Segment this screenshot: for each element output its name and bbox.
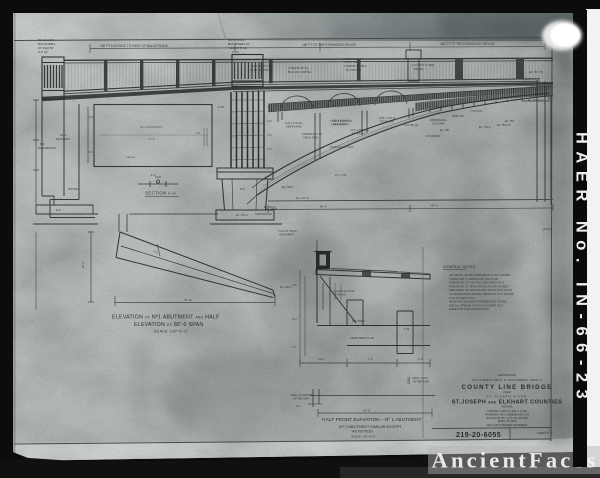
svg-text:HAER No. IN-66-23: HAER No. IN-66-23 bbox=[573, 132, 591, 406]
